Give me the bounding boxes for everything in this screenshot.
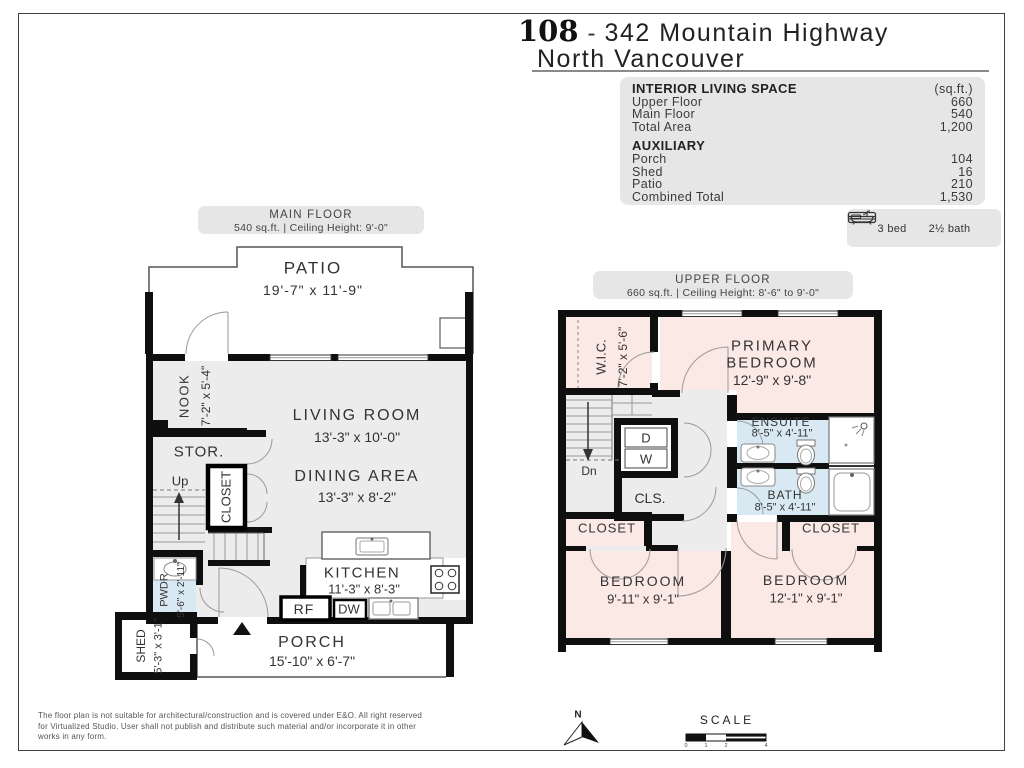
baths-label: 2½ bath [929, 223, 971, 235]
living-room-dims: 13'-3" x 10'-0" [314, 430, 400, 444]
patio-label: PATIO [284, 260, 343, 277]
bath-icon [847, 209, 877, 225]
summary-row: Main Floor 540 [632, 108, 973, 121]
upper-floor-title: UPPER FLOOR [593, 274, 853, 286]
ensuite-toilet [797, 440, 815, 465]
shed-label: SHED [135, 629, 147, 662]
washer-label: W [640, 453, 652, 466]
upper-floor-subtitle: 660 sq.ft. | Ceiling Height: 8'-6" to 9'… [593, 287, 853, 299]
shower [829, 417, 874, 463]
shed-dims: 5'-3" x 3'-1" [154, 618, 165, 673]
bedroom-left-dims: 9'-11" x 9'-1" [607, 593, 679, 606]
summary-row: Combined Total 1,530 [632, 191, 973, 204]
bedroom-right-dims: 12'-1" x 9'-1" [770, 592, 843, 605]
kitchen-sink [369, 598, 418, 619]
ensuite-dims: 8'-5" x 4'-11" [752, 429, 813, 440]
porch-label: PORCH [278, 635, 346, 651]
primary-bedroom-dims: 12'-9" x 9'-8" [733, 373, 811, 387]
powder-room-label: PWDR [160, 573, 171, 607]
nook-dims: 7'-2" x 5'-4" [200, 366, 212, 426]
dryer-label: D [641, 432, 650, 445]
ensuite-sink [741, 444, 775, 462]
wic-dims: 7'-2" x 5'-6" [617, 327, 629, 387]
beds-label: 3 bed [878, 223, 907, 235]
baths-badge: 2½ bath [929, 222, 971, 235]
kitchen-dims: 11'-3" x 8'-3" [328, 583, 400, 596]
primary-bedroom-label-1: PRIMARY [731, 339, 813, 354]
floor-plan-page: 108 - 342 Mountain Highway North Vancouv… [0, 0, 1024, 768]
bathtub [829, 469, 874, 515]
stairs-down-label: Dn [581, 465, 596, 477]
title-separator: - [588, 20, 596, 48]
summary-row: Shed 16 [632, 166, 973, 179]
stairs-up-label: Up [172, 475, 189, 488]
unit-number: 108 [518, 14, 579, 48]
storage-label: STOR. [174, 445, 225, 460]
dishwasher-label: DW [338, 603, 360, 616]
porch-dims: 15'-10" x 6'-7" [269, 654, 355, 668]
living-room-label: LIVING ROOM [293, 408, 422, 424]
closet-right-label: CLOSET [802, 522, 860, 535]
kitchen-label: KITCHEN [324, 566, 400, 581]
main-floor-label-box: MAIN FLOOR 540 sq.ft. | Ceiling Height: … [198, 206, 424, 234]
scale-tick: 1 [704, 743, 707, 749]
main-floor-title: MAIN FLOOR [198, 209, 424, 221]
nook-label: NOOK [178, 374, 191, 418]
summary-row: Patio 210 [632, 178, 973, 191]
wic-label: W.I.C. [595, 339, 608, 374]
disclaimer-text: The floor plan is not suitable for archi… [38, 711, 508, 743]
bedroom-right-label: BEDROOM [763, 573, 849, 587]
interior-title: INTERIOR LIVING SPACE [632, 83, 797, 96]
beds-badge: 3 bed [878, 222, 907, 235]
title-divider [532, 70, 989, 72]
upper-floor-label-box: UPPER FLOOR 660 sq.ft. | Ceiling Height:… [593, 271, 853, 299]
street-address: 342 Mountain Highway [605, 19, 889, 48]
bed-bath-badges: 3 bed 2½ bath [847, 209, 1001, 247]
page-title: 108 - 342 Mountain Highway [518, 14, 889, 48]
fridge-label: RF [294, 602, 315, 616]
powder-room-dims: 5'-6" x 2'-11" [177, 562, 187, 617]
scale-tick: 2 [724, 743, 727, 749]
cls-label: CLS. [634, 491, 665, 505]
interior-header: INTERIOR LIVING SPACE (sq.ft.) [632, 83, 973, 96]
kitchen-island [322, 532, 430, 559]
ensuite-label: ENSUITE [751, 416, 810, 428]
sqft-unit: (sq.ft.) [934, 83, 973, 96]
entry-arrow [233, 622, 251, 635]
stove-icon [431, 566, 459, 593]
auxiliary-header: AUXILIARY [632, 140, 973, 153]
primary-bedroom-label-2: BEDROOM [726, 356, 818, 371]
bath-sink [741, 468, 775, 486]
bath-label: BATH [767, 489, 802, 501]
scale-bar [686, 734, 766, 741]
closet-left-label: CLOSET [578, 522, 636, 535]
north-label: N [574, 710, 581, 721]
north-arrow-icon [564, 722, 599, 745]
dining-area-label: DINING AREA [294, 469, 419, 485]
patio-dims: 19'-7" x 11'-9" [263, 283, 363, 297]
scale-label: SCALE [700, 713, 754, 727]
closet-label: CLOSET [220, 471, 233, 523]
area-summary-panel: INTERIOR LIVING SPACE (sq.ft.) Upper Flo… [620, 77, 985, 205]
dining-area-dims: 13'-3" x 8'-2" [318, 490, 396, 504]
summary-row: Porch 104 [632, 153, 973, 166]
scale-tick: 4 [764, 743, 767, 749]
bath-dims: 8'-5" x 4'-11" [755, 503, 816, 514]
summary-row: Total Area 1,200 [632, 121, 973, 134]
bedroom-left-label: BEDROOM [600, 574, 686, 588]
main-floor-subtitle: 540 sq.ft. | Ceiling Height: 9'-0" [198, 222, 424, 234]
scale-tick: 0 [684, 743, 687, 749]
